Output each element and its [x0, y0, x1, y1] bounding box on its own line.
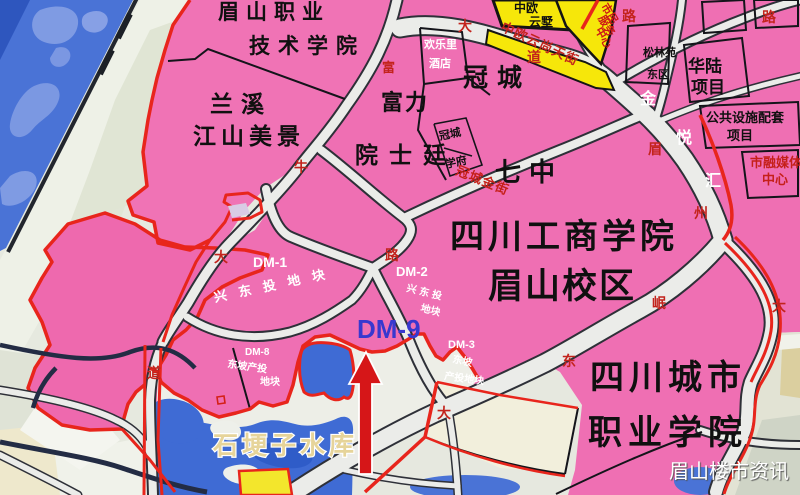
svg-text:酒店: 酒店: [429, 56, 451, 70]
svg-text:项目: 项目: [727, 128, 753, 143]
svg-text:地块: 地块: [260, 375, 281, 388]
svg-text:道: 道: [147, 365, 161, 381]
svg-text:技术学院: 技术学院: [249, 34, 365, 58]
svg-text:岷: 岷: [652, 295, 666, 311]
svg-text:路: 路: [762, 9, 777, 25]
svg-text:四川工商学院: 四川工商学院: [450, 217, 678, 256]
svg-text:江山美景: 江山美景: [193, 123, 305, 149]
svg-text:欢乐里: 欢乐里: [423, 37, 457, 51]
svg-text:DM-9: DM-9: [357, 314, 421, 344]
svg-text:眉: 眉: [648, 141, 662, 157]
svg-text:富力: 富力: [381, 90, 429, 115]
svg-text:DM-3: DM-3: [448, 339, 475, 351]
svg-text:中欧: 中欧: [514, 0, 538, 15]
svg-text:公共设施配套: 公共设施配套: [706, 110, 785, 125]
svg-text:松林苑: 松林苑: [643, 45, 676, 59]
svg-text:富: 富: [382, 60, 395, 75]
svg-text:东: 东: [562, 353, 576, 369]
svg-text:眉山楼市资讯: 眉山楼市资讯: [669, 460, 789, 483]
svg-text:大: 大: [772, 298, 786, 314]
svg-text:大: 大: [214, 249, 228, 265]
svg-text:DM-1: DM-1: [253, 254, 287, 270]
svg-text:职业学院: 职业学院: [588, 413, 748, 452]
svg-text:项目: 项目: [691, 78, 725, 97]
svg-text:市融媒体: 市融媒体: [750, 155, 800, 170]
svg-text:云墅: 云墅: [529, 15, 553, 29]
svg-text:四川城市: 四川城市: [590, 358, 746, 397]
svg-text:牛: 牛: [294, 159, 308, 175]
svg-text:金: 金: [639, 89, 657, 108]
svg-text:DM-2: DM-2: [396, 264, 428, 279]
svg-text:眉山校区: 眉山校区: [488, 267, 636, 306]
svg-text:悦: 悦: [676, 128, 692, 147]
svg-text:华陆: 华陆: [688, 56, 722, 76]
svg-text:眉山职业: 眉山职业: [218, 1, 330, 24]
svg-text:中心: 中心: [762, 172, 788, 187]
svg-text:石埂子水库: 石埂子水库: [212, 432, 358, 460]
svg-text:州: 州: [693, 205, 708, 221]
svg-text:东区: 东区: [647, 67, 669, 81]
svg-text:DM-8: DM-8: [245, 347, 270, 358]
svg-text:冠城: 冠城: [463, 64, 531, 92]
svg-text:院士廷: 院士廷: [355, 142, 457, 168]
svg-text:大: 大: [458, 18, 472, 34]
svg-text:大: 大: [437, 405, 451, 421]
svg-text:兰溪: 兰溪: [210, 91, 272, 117]
svg-text:汇: 汇: [705, 172, 721, 190]
svg-text:路: 路: [622, 8, 637, 24]
svg-text:路: 路: [385, 247, 400, 263]
